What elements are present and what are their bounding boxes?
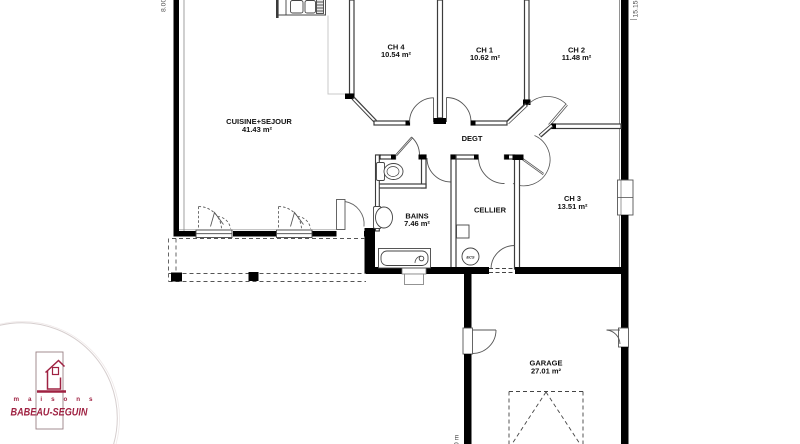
svg-text:CELLIER: CELLIER [474, 206, 507, 215]
svg-text:27.01 m²: 27.01 m² [531, 367, 562, 376]
svg-text:0 m: 0 m [454, 434, 461, 444]
svg-text:11.48 m²: 11.48 m² [562, 53, 592, 62]
svg-text:BABEAU-SEGUIN: BABEAU-SEGUIN [11, 406, 89, 418]
svg-text:10.54 m²: 10.54 m² [381, 50, 412, 59]
svg-text:15.15 m: 15.15 m [633, 0, 640, 18]
svg-text:7.46 m²: 7.46 m² [404, 219, 430, 228]
svg-text:ECS: ECS [466, 255, 475, 260]
svg-text:8.00 m: 8.00 m [161, 0, 168, 12]
svg-text:10.62 m²: 10.62 m² [470, 53, 501, 62]
svg-text:DEGT: DEGT [462, 134, 483, 143]
svg-text:41.43 m²: 41.43 m² [242, 125, 273, 134]
svg-text:13.51 m²: 13.51 m² [557, 202, 588, 211]
